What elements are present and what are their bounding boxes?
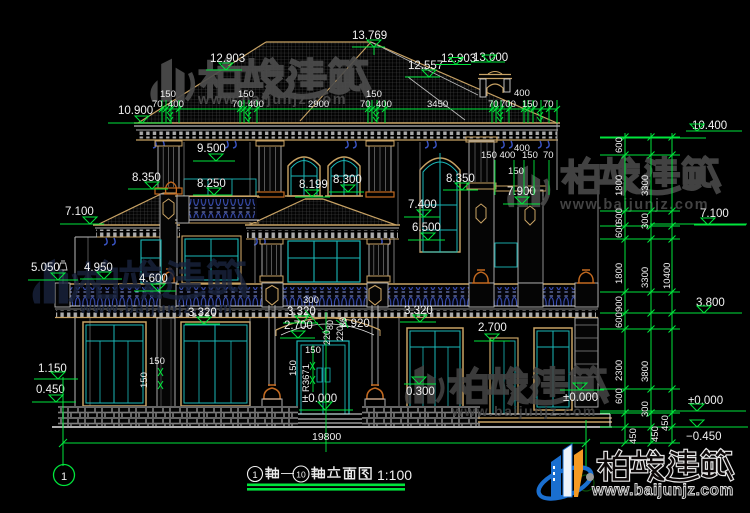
svg-text:3450: 3450 xyxy=(427,99,448,110)
svg-text:150 400: 150 400 xyxy=(481,150,515,161)
svg-text:150: 150 xyxy=(288,360,299,376)
svg-text:700: 700 xyxy=(500,99,516,110)
svg-text:70: 70 xyxy=(152,99,163,110)
svg-text:±0.000: ±0.000 xyxy=(302,393,337,405)
svg-text:10400: 10400 xyxy=(662,263,673,289)
svg-text:—: — xyxy=(281,465,294,480)
svg-text:5.050: 5.050 xyxy=(31,262,60,274)
svg-text:150: 150 xyxy=(139,372,150,388)
svg-text:1800: 1800 xyxy=(614,175,625,196)
svg-text:300: 300 xyxy=(640,401,651,417)
svg-text:−0.450: −0.450 xyxy=(686,431,722,443)
svg-text:900: 900 xyxy=(614,296,625,312)
svg-text:www.baijunjz.com: www.baijunjz.com xyxy=(591,482,734,499)
svg-text:300: 300 xyxy=(303,295,319,306)
svg-text:80: 80 xyxy=(338,317,348,327)
svg-text:7.400: 7.400 xyxy=(408,199,437,211)
svg-text:0.450: 0.450 xyxy=(36,384,65,396)
svg-text:12.903: 12.903 xyxy=(441,53,476,65)
svg-text:70: 70 xyxy=(232,99,243,110)
svg-text:600: 600 xyxy=(614,208,625,224)
svg-text:450: 450 xyxy=(628,428,639,444)
svg-text:8.300: 8.300 xyxy=(333,174,362,186)
svg-text:9.500: 9.500 xyxy=(197,143,226,155)
svg-text:150: 150 xyxy=(508,166,524,177)
svg-text:400: 400 xyxy=(514,143,530,154)
svg-text:600: 600 xyxy=(614,312,625,328)
svg-text:R3671: R3671 xyxy=(301,364,312,392)
svg-text:3300: 3300 xyxy=(640,175,651,196)
svg-text:80: 80 xyxy=(325,320,335,330)
svg-text:2900: 2900 xyxy=(308,99,329,110)
svg-text:400: 400 xyxy=(168,99,184,110)
svg-text:70: 70 xyxy=(360,99,371,110)
svg-text:3300: 3300 xyxy=(640,267,651,288)
svg-text:1800: 1800 xyxy=(614,263,625,284)
svg-text:600: 600 xyxy=(614,388,625,404)
svg-text:150: 150 xyxy=(305,345,321,356)
svg-text:7.100: 7.100 xyxy=(65,206,94,218)
svg-text:±0.000: ±0.000 xyxy=(688,395,723,407)
svg-text:3800: 3800 xyxy=(640,361,651,382)
svg-text:6.500: 6.500 xyxy=(412,222,441,234)
svg-text:4.600: 4.600 xyxy=(139,273,168,285)
svg-text:19800: 19800 xyxy=(312,431,341,443)
svg-text:400: 400 xyxy=(248,99,264,110)
svg-text:2300: 2300 xyxy=(614,360,625,381)
svg-text:150: 150 xyxy=(522,99,538,110)
svg-text:300: 300 xyxy=(640,213,651,229)
svg-text:150: 150 xyxy=(149,356,165,367)
svg-text:1: 1 xyxy=(61,471,67,483)
svg-text:400: 400 xyxy=(514,88,530,99)
svg-text:8.199: 8.199 xyxy=(299,179,328,191)
svg-text:70: 70 xyxy=(543,150,554,161)
svg-text:1:100: 1:100 xyxy=(377,467,412,483)
svg-text:450: 450 xyxy=(660,415,671,431)
svg-text:70: 70 xyxy=(543,99,554,110)
svg-text:600: 600 xyxy=(614,137,625,153)
svg-text:10.900: 10.900 xyxy=(118,105,153,117)
svg-text:1: 1 xyxy=(252,470,257,481)
svg-text:2.700: 2.700 xyxy=(284,320,313,332)
svg-text:600: 600 xyxy=(614,222,625,238)
svg-text:220: 220 xyxy=(322,330,332,345)
svg-text:10: 10 xyxy=(296,470,306,480)
svg-text:2.700: 2.700 xyxy=(478,322,507,334)
svg-text:0.300: 0.300 xyxy=(406,386,435,398)
svg-text:400: 400 xyxy=(376,99,392,110)
svg-text:7.900: 7.900 xyxy=(507,186,536,198)
svg-text:220: 220 xyxy=(335,326,345,341)
svg-text:www.baijunjz.com: www.baijunjz.com xyxy=(451,403,597,419)
svg-text:±0.000: ±0.000 xyxy=(563,392,598,404)
svg-text:70: 70 xyxy=(488,99,499,110)
